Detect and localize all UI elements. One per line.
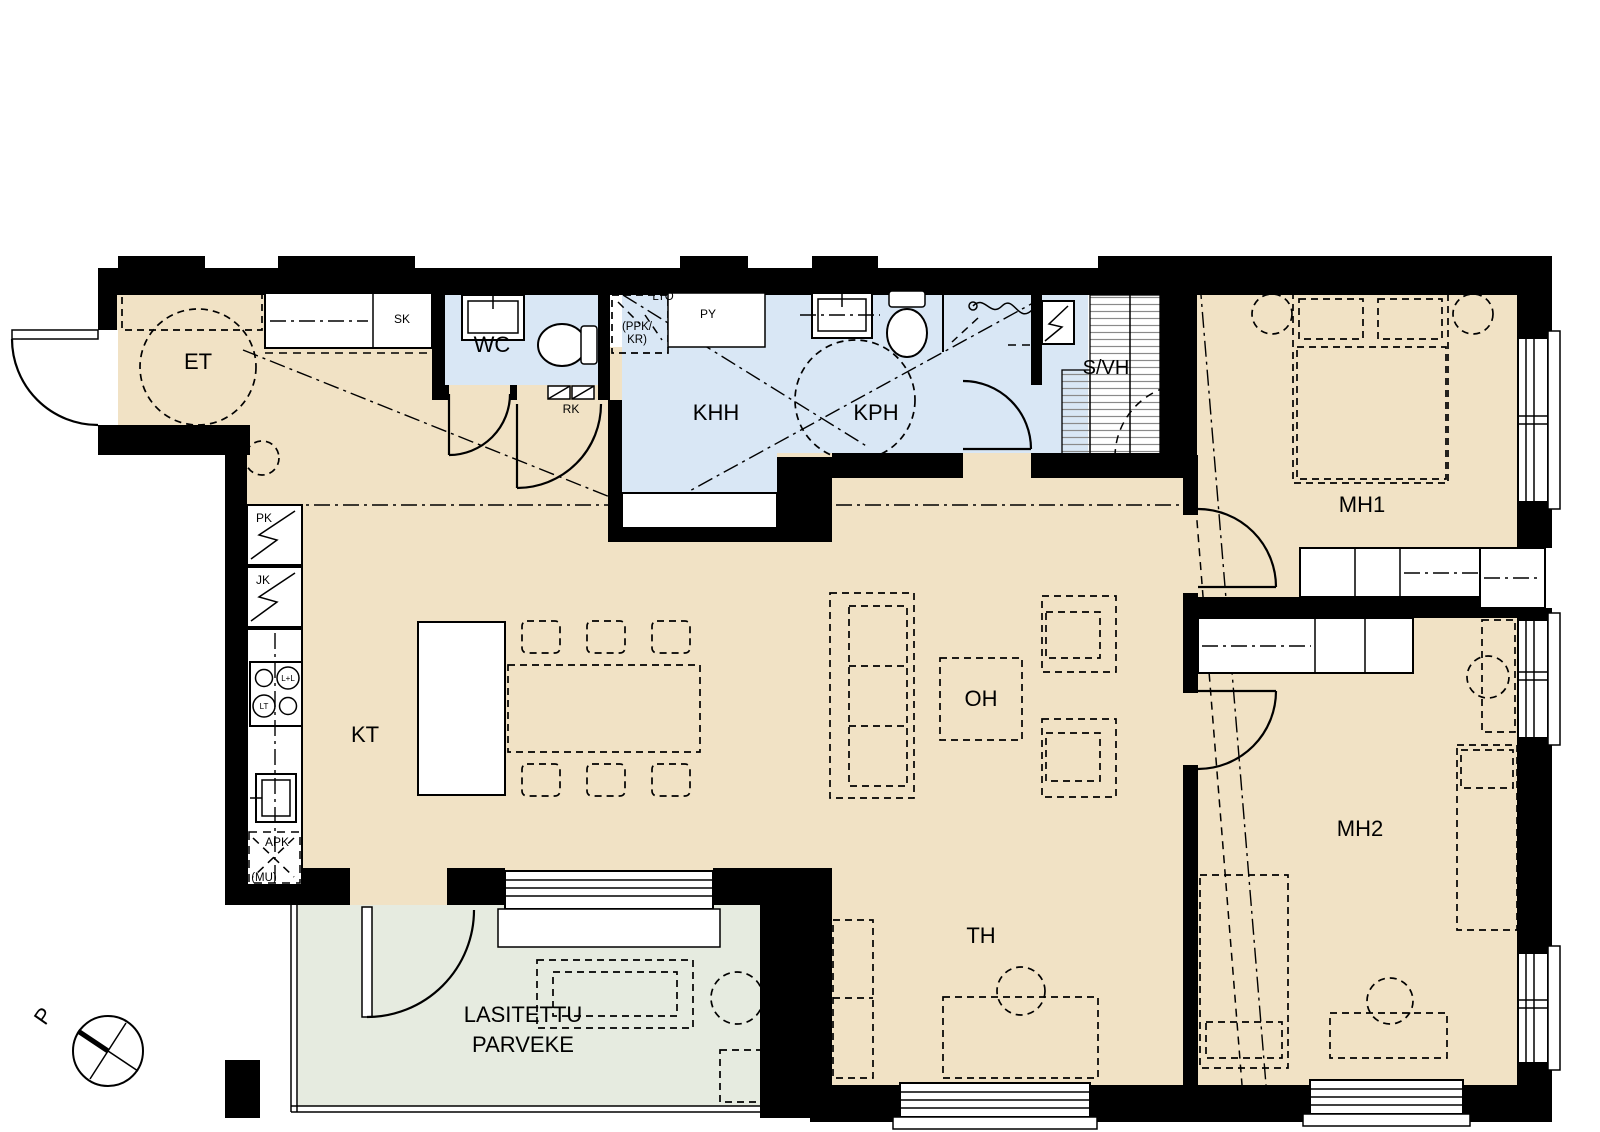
- wall-top-bump: [278, 256, 415, 268]
- label-kitchen: KT: [351, 722, 379, 747]
- wall-balcony-right: [760, 868, 832, 1118]
- mh2-window-a: [1518, 620, 1548, 738]
- khh-lower-cabinet: [622, 493, 777, 528]
- wall-kph-sauna-stub: [1031, 283, 1042, 385]
- wc-toilet-bowl: [538, 324, 586, 366]
- wall-wc-bottom: [510, 385, 517, 400]
- wall-mh1-mh2-divider: [1183, 597, 1517, 618]
- label-wc: WC: [474, 332, 511, 357]
- balcony-glazing-left: [291, 905, 297, 1112]
- wall-entry-bottom: [98, 425, 250, 455]
- mh2-wardrobe: [1198, 618, 1413, 673]
- wall-mh2-bottom: [1160, 1085, 1310, 1122]
- floor-plan-canvas: ET SK WC RK KHH KPH S/VH LTO (PPK/ KR) P…: [0, 0, 1600, 1132]
- entry-door-swing: [12, 339, 98, 425]
- wall-khh-left: [608, 400, 622, 542]
- mh2-bottom-window-sill: [1303, 1114, 1470, 1126]
- floor-workspace: [832, 868, 1183, 1085]
- label-sauna: S/VH: [1083, 357, 1130, 379]
- wall-column: [777, 457, 832, 542]
- wall-right: [1517, 500, 1552, 548]
- wall-right: [1517, 268, 1552, 340]
- wall-hall-mh1: [1183, 593, 1198, 618]
- kitchen-island: [418, 622, 505, 795]
- label-lto: LTO: [652, 291, 673, 303]
- wall-kitchen-left: [225, 455, 247, 905]
- label-kr: KR): [627, 334, 647, 346]
- label-burner-lt: LT: [260, 702, 269, 711]
- label-burner-ll: L+L: [281, 674, 295, 683]
- wc-toilet-tank: [581, 326, 597, 364]
- wall-hall-mh2: [1183, 765, 1198, 1085]
- kph-toilet-bowl: [887, 309, 927, 357]
- wall-right: [1517, 608, 1552, 620]
- kph-toilet-tank: [889, 291, 925, 307]
- wall-sauna-bottom: [1031, 453, 1197, 478]
- wall-left-upper: [98, 268, 117, 330]
- py-cabinet: [668, 293, 765, 347]
- floor-plan: ET SK WC RK KHH KPH S/VH LTO (PPK/ KR) P…: [0, 0, 1600, 1132]
- wall-top-bump: [680, 256, 748, 268]
- wall-kph-bottom: [832, 453, 963, 478]
- living-window-sill: [498, 909, 720, 947]
- wall-sauna-right: [1160, 268, 1197, 455]
- label-pk: PK: [256, 511, 272, 525]
- label-bedroom2: MH2: [1337, 816, 1383, 841]
- wall-wc-khh-divider: [598, 268, 610, 400]
- compass: P: [29, 1003, 143, 1086]
- wall-th-bottom: [810, 1085, 900, 1122]
- compass-needle: [78, 1031, 108, 1051]
- wall-top-bump: [118, 256, 205, 268]
- label-mu: (MU): [251, 872, 277, 884]
- label-apk: APK: [265, 835, 289, 849]
- label-utility: KHH: [693, 400, 739, 425]
- mh2-window-a-sill: [1548, 613, 1560, 745]
- compass-north-label: P: [29, 1003, 58, 1029]
- balcony-glazing-bottom: [291, 1106, 790, 1112]
- label-balcony-line2: PARVEKE: [472, 1032, 574, 1057]
- th-window-sill: [893, 1117, 1097, 1129]
- mh1-window: [1518, 338, 1548, 502]
- entry-door-leaf: [12, 330, 98, 339]
- label-bathroom: KPH: [853, 400, 898, 425]
- wall-top: [98, 268, 1552, 295]
- mh1-window-sill: [1548, 331, 1560, 509]
- label-balcony-line1: LASITETTU: [464, 1002, 583, 1027]
- wall-top-bump: [812, 256, 878, 268]
- wall-wc-bottom: [432, 385, 449, 400]
- wall-wc-left: [432, 268, 445, 400]
- sauna-bench-lower: [1062, 370, 1090, 455]
- label-jk: JK: [256, 573, 270, 587]
- label-ppk: (PPK/: [622, 321, 653, 333]
- sauna-heater: [1042, 301, 1074, 344]
- wall-hall-mh2: [1183, 618, 1198, 693]
- label-bedroom1: MH1: [1339, 492, 1385, 517]
- label-entry: ET: [184, 349, 212, 374]
- wall-balcony-stub: [225, 1060, 260, 1118]
- balcony-door-leaf: [362, 907, 372, 1017]
- wall-living-bottom: [713, 868, 760, 905]
- label-living: OH: [965, 686, 998, 711]
- living-window: [505, 871, 713, 909]
- label-workspace: TH: [966, 923, 995, 948]
- entry-door-opening: [97, 330, 118, 425]
- wall-living-bottom: [447, 868, 505, 905]
- label-closet-sk: SK: [394, 312, 410, 326]
- label-py: PY: [700, 307, 716, 321]
- mh2-window-b-sill: [1548, 946, 1560, 1070]
- wall-top-bump: [1098, 256, 1552, 268]
- wall-right: [1517, 1063, 1552, 1122]
- wall-right: [1517, 738, 1552, 953]
- label-rk: RK: [563, 402, 580, 416]
